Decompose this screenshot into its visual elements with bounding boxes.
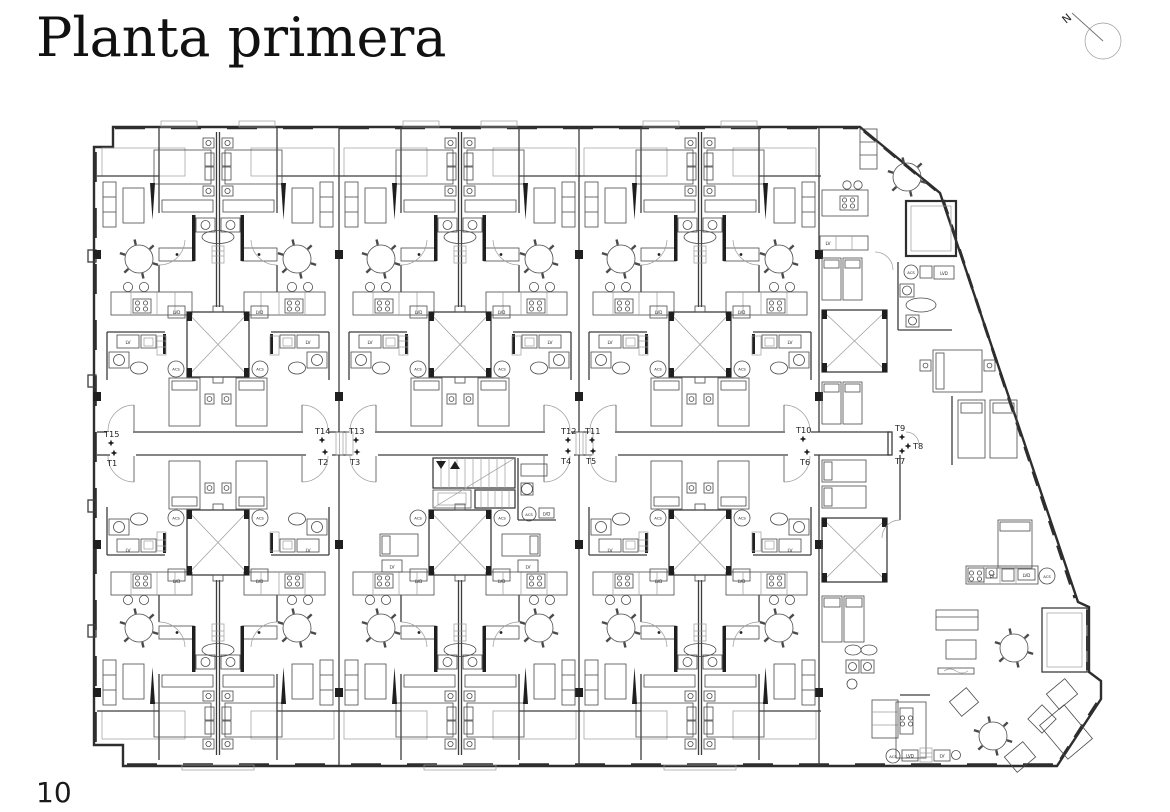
fixture-label: LV [548, 340, 553, 346]
fixture-label: LV [788, 340, 793, 346]
unit-label-T2: T2 [317, 457, 328, 467]
unit-label-T10: T10 [795, 425, 811, 435]
fixture-label: ACS [414, 516, 422, 521]
fixture-label: LV [788, 548, 793, 554]
floor-plan-drawing: LVDLVDACSACSLVLVLVDLVDACSACSLVLVLVDLVDAC… [88, 121, 1101, 772]
fixture-label: LVD [655, 310, 663, 315]
fixture-label: ACS [256, 367, 264, 372]
fixture-label: ACS [172, 367, 180, 372]
fixture-label: LV [126, 548, 131, 554]
fixture-label: LV [826, 241, 831, 247]
fixture-label: LVD [738, 310, 746, 315]
unit-label-T9: T9 [894, 423, 905, 433]
fixture-label: LVD [173, 579, 181, 584]
fixture-label: LVD [415, 579, 423, 584]
fixture-label: LV [940, 754, 945, 760]
unit-label-T12: T12 [560, 426, 576, 436]
fixture-label: ACS [654, 516, 662, 521]
fixture-label: LVD [906, 754, 914, 759]
unit-label-T5: T5 [585, 456, 596, 466]
fixture-label: LVD [738, 579, 746, 584]
unit-label-T14: T14 [314, 426, 330, 436]
fixture-label: LV [990, 574, 995, 580]
fixture-label: ACS [414, 367, 422, 372]
fixture-label: ACS [172, 516, 180, 521]
fixture-label: LVD [256, 310, 264, 315]
fixture-label: LVD [173, 310, 181, 315]
fixture-label: LV [306, 548, 311, 554]
fixture-label: LVD [543, 511, 551, 516]
document-page: Planta primera N LVDLVDACSACSLVLVLVDLVDA… [0, 0, 1170, 812]
fixture-label: ACS [498, 367, 506, 372]
unit-label-T13: T13 [348, 426, 364, 436]
fixture-label: ACS [525, 512, 533, 517]
fixture-label: ACS [907, 270, 915, 275]
fixture-label: ACS [654, 367, 662, 372]
fixture-label: LVD [415, 310, 423, 315]
unit-label-T3: T3 [349, 457, 360, 467]
fixture-label: LV [526, 565, 531, 571]
floor-plan: N LVDLVDACSACSLVLVLVDLVDACSACSLVLVLVDLVD… [0, 0, 1170, 812]
fixture-label: LV [390, 565, 395, 571]
unit-label-T15: T15 [103, 429, 119, 439]
page-number: 10 [36, 776, 72, 809]
fixture-label: ACS [738, 367, 746, 372]
fixture-label: ACS [889, 754, 897, 759]
fixture-label: ACS [256, 516, 264, 521]
unit-label-T7: T7 [894, 456, 905, 466]
fixture-label: LVD [256, 579, 264, 584]
fixture-label: LV [608, 340, 613, 346]
fixture-label: ACS [1043, 574, 1051, 579]
fixture-label: ACS [498, 516, 506, 521]
fixture-label: ACS [738, 516, 746, 521]
fixture-label: LVD [655, 579, 663, 584]
fixture-label: LV [126, 340, 131, 346]
unit-label-T8: T8 [912, 441, 923, 451]
fixture-label: LVD [940, 271, 948, 276]
unit-label-T1: T1 [106, 458, 117, 468]
fixture-label: LVD [498, 579, 506, 584]
fixture-label: LV [608, 548, 613, 554]
fixture-label: LV [306, 340, 311, 346]
fixture-label: LV [368, 340, 373, 346]
unit-label-T4: T4 [560, 456, 571, 466]
fixture-label: LVD [498, 310, 506, 315]
unit-label-T11: T11 [584, 426, 600, 436]
unit-label-T6: T6 [799, 457, 810, 467]
fixture-label: LVD [1023, 573, 1031, 578]
north-arrow-icon: N [1060, 11, 1121, 59]
